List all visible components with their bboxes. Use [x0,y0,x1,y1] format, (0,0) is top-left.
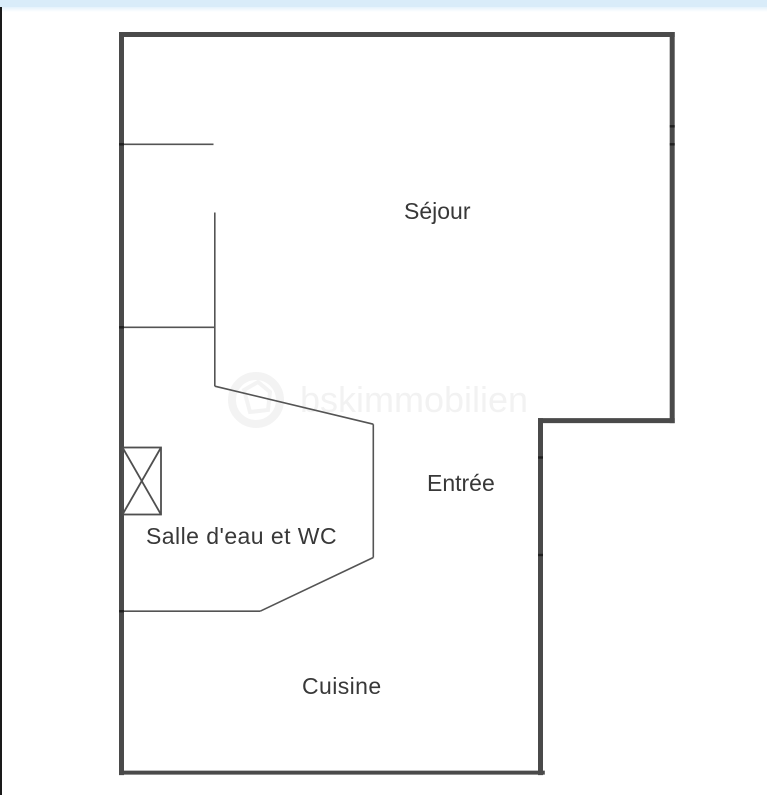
svg-text:bskimmobilien: bskimmobilien [300,379,528,420]
